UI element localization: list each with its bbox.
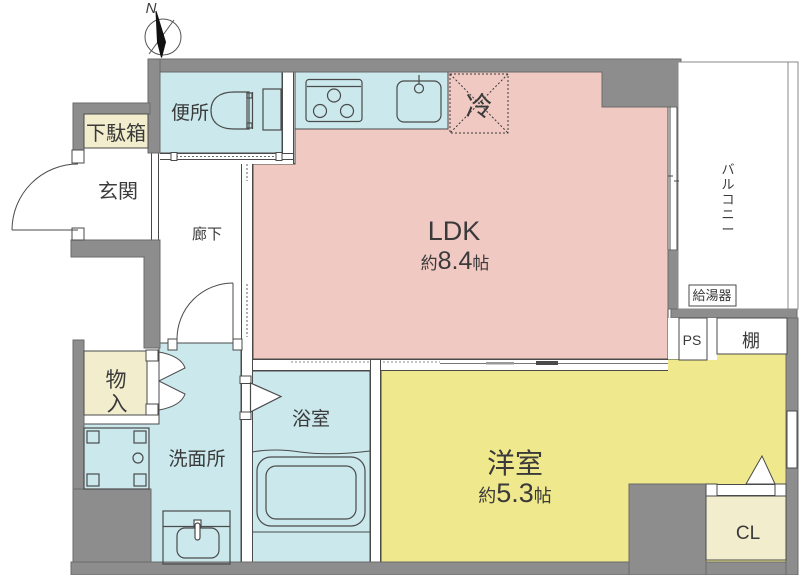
svg-text:浴室: 浴室 xyxy=(292,408,330,430)
svg-text:洗面所: 洗面所 xyxy=(168,448,225,470)
svg-text:給湯器: 給湯器 xyxy=(692,288,731,303)
svg-text:下駄箱: 下駄箱 xyxy=(86,122,146,145)
svg-text:ニ: ニ xyxy=(721,207,734,222)
svg-text:入: 入 xyxy=(107,393,128,416)
svg-text:棚: 棚 xyxy=(742,331,760,351)
svg-text:ル: ル xyxy=(721,177,734,192)
svg-text:玄関: 玄関 xyxy=(98,180,138,203)
svg-text:N: N xyxy=(146,0,157,17)
svg-text:物: 物 xyxy=(106,369,127,392)
svg-text:洋室: 洋室 xyxy=(487,448,543,479)
svg-text:廊下: 廊下 xyxy=(192,226,222,243)
svg-text:コ: コ xyxy=(721,192,734,207)
svg-text:便所: 便所 xyxy=(171,102,209,124)
svg-text:冷: 冷 xyxy=(466,92,493,122)
svg-text:バ: バ xyxy=(721,162,734,177)
svg-text:PS: PS xyxy=(683,332,702,348)
svg-text:ー: ー xyxy=(721,222,734,237)
svg-text:LDK: LDK xyxy=(428,216,481,246)
svg-text:CL: CL xyxy=(736,523,760,544)
